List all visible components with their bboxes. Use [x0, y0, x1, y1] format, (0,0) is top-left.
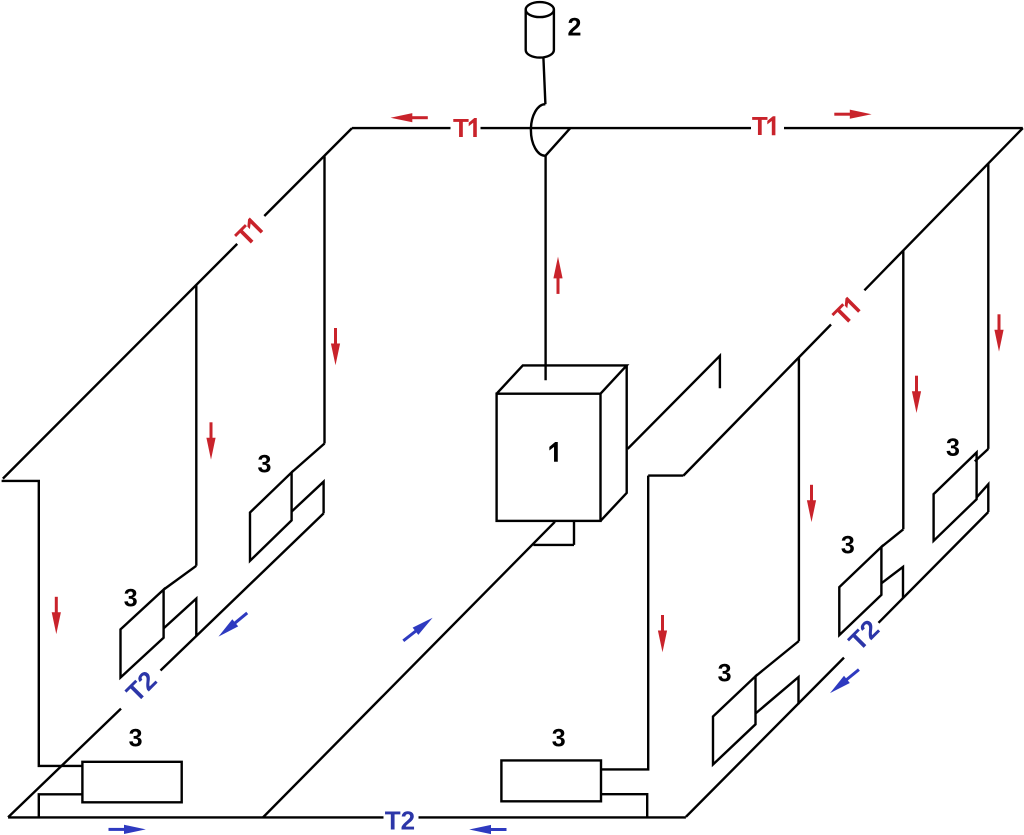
svg-text:3: 3: [841, 532, 855, 560]
svg-text:T2: T2: [385, 806, 415, 835]
svg-text:2: 2: [568, 13, 582, 41]
svg-text:T: T: [752, 111, 768, 141]
svg-text:3: 3: [124, 584, 138, 612]
svg-text:3: 3: [129, 724, 143, 752]
svg-text:3: 3: [718, 659, 732, 687]
svg-text:3: 3: [258, 451, 272, 479]
svg-text:T: T: [453, 113, 469, 143]
svg-text:3: 3: [946, 434, 960, 462]
svg-text:3: 3: [552, 725, 566, 753]
